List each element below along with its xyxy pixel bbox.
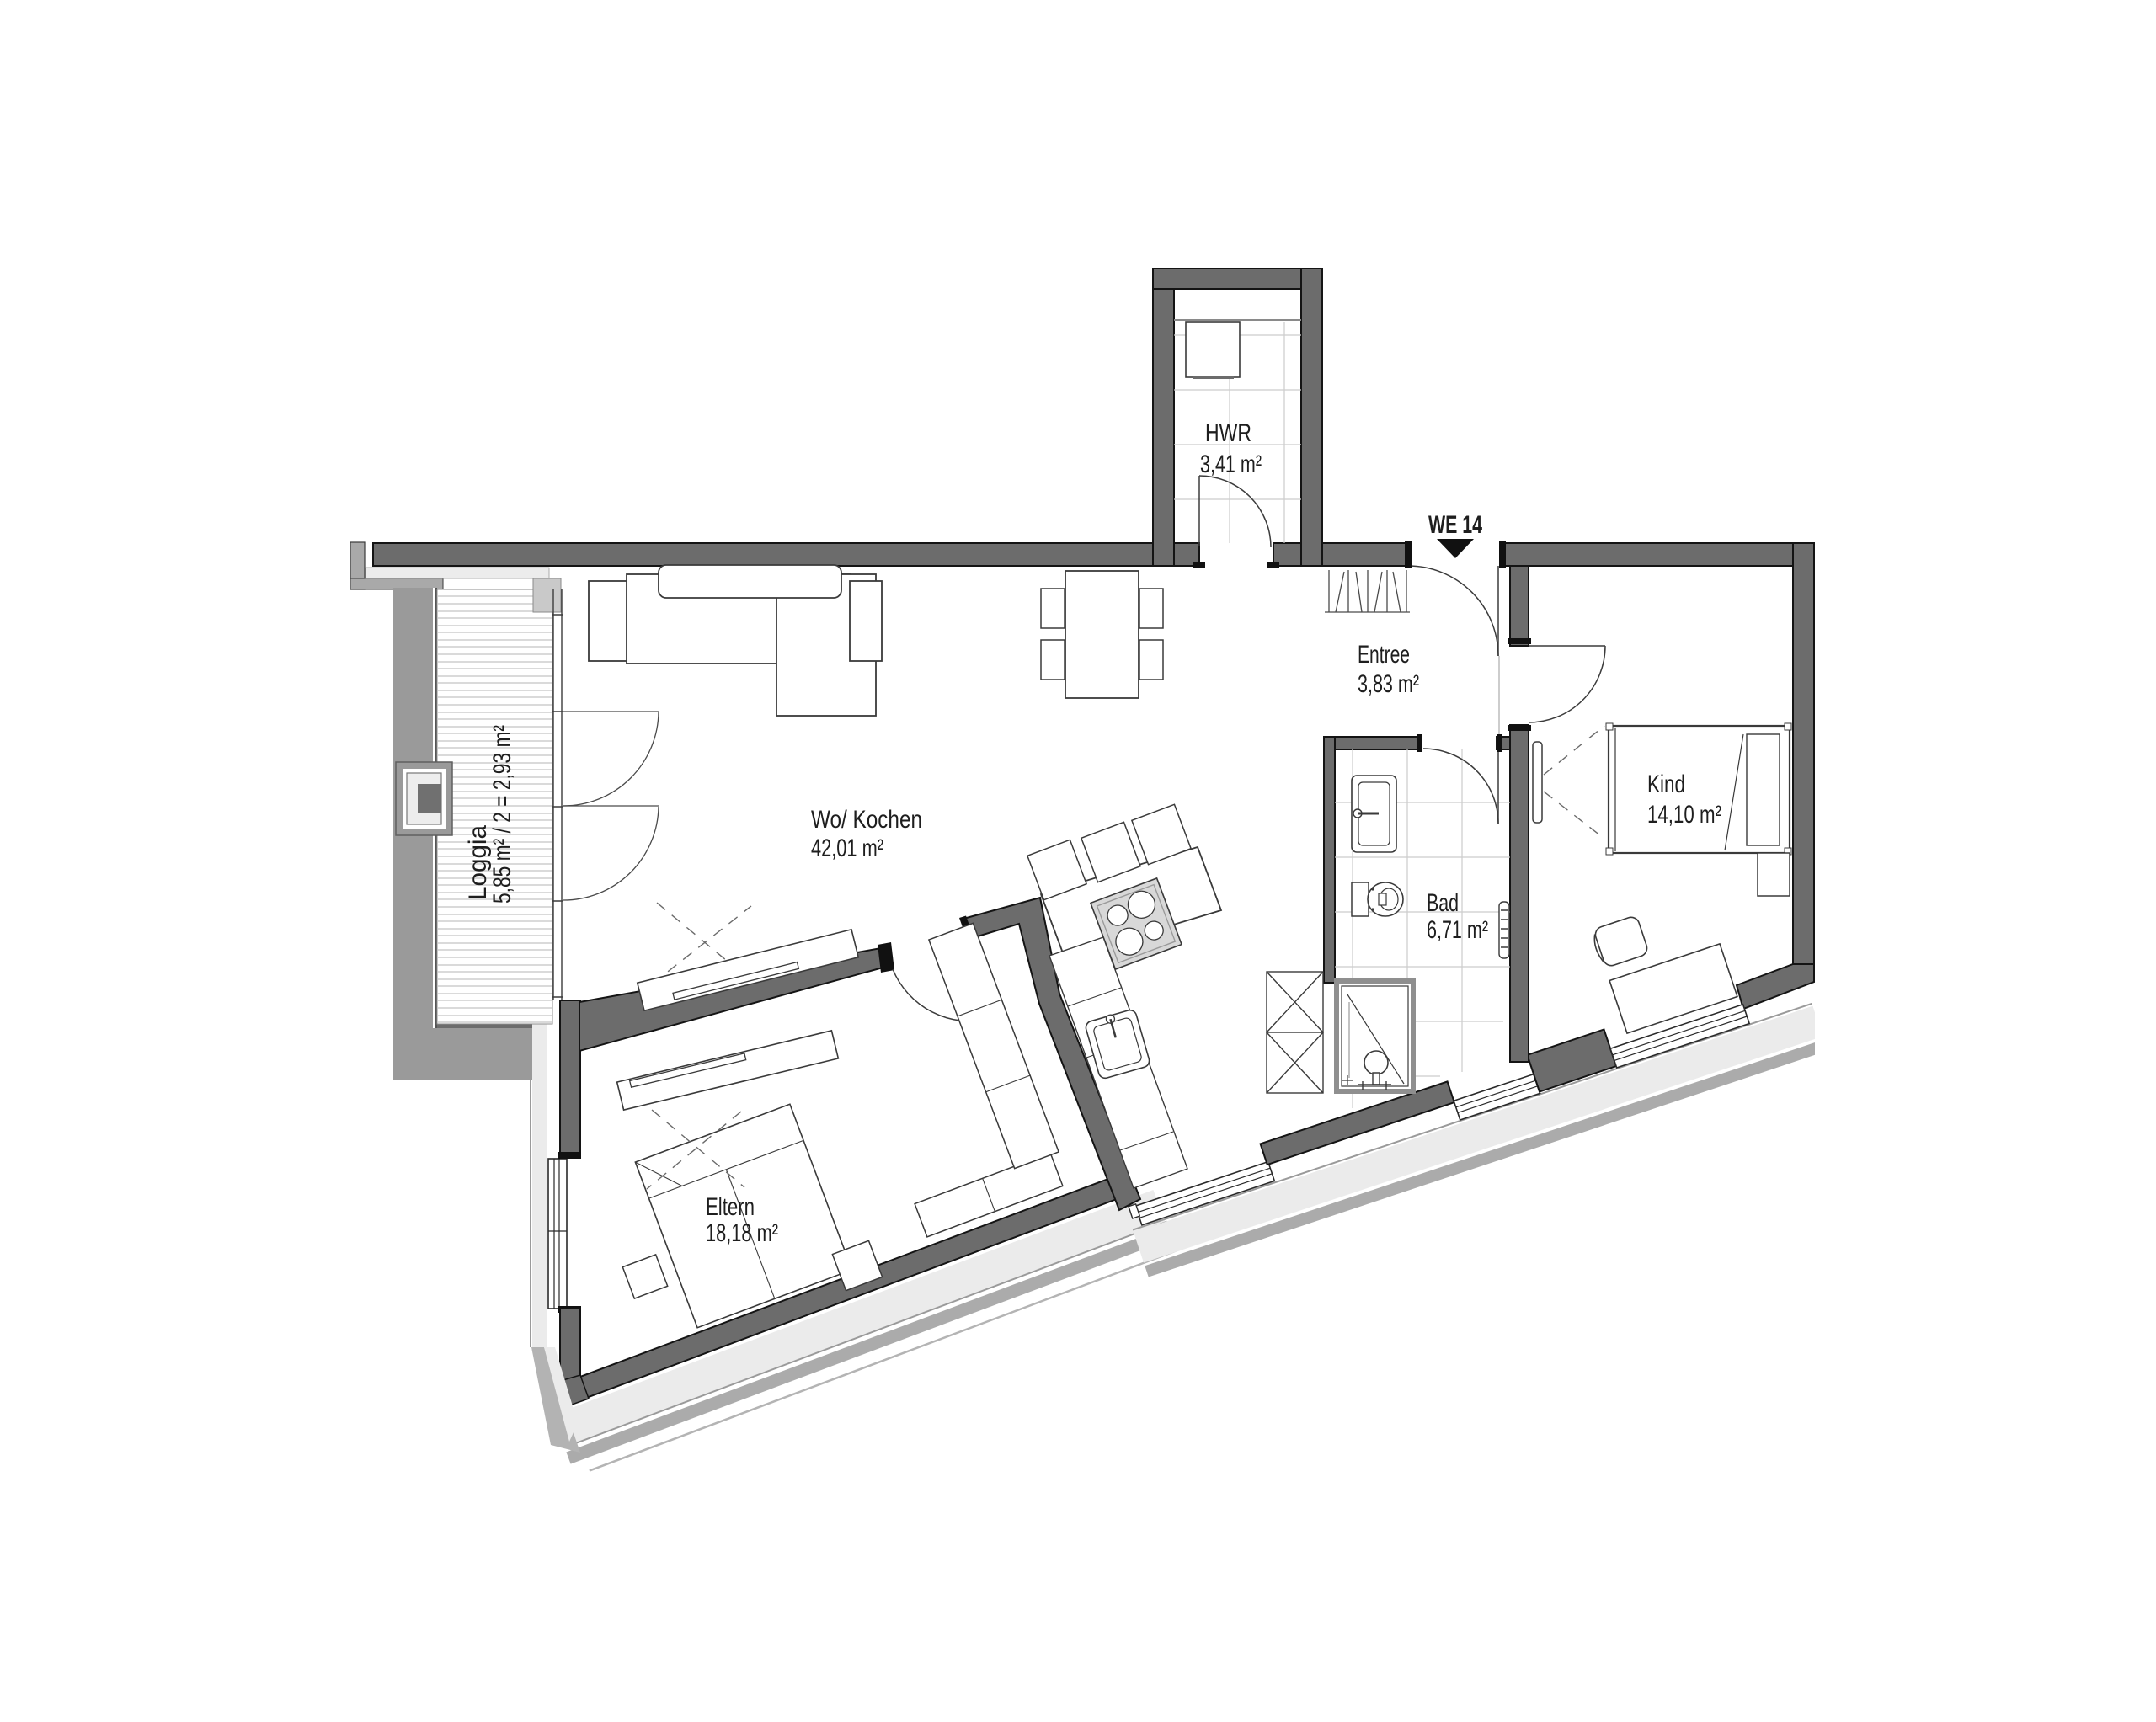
svg-text:Bad: Bad [1427,889,1459,917]
svg-text:18,18 m²: 18,18 m² [706,1219,778,1247]
svg-text:HWR: HWR [1205,419,1251,447]
svg-text:Eltern: Eltern [706,1193,755,1221]
svg-text:WE 14: WE 14 [1428,511,1482,539]
svg-text:6,71 m²: 6,71 m² [1427,916,1488,944]
svg-text:42,01 m²: 42,01 m² [811,834,883,862]
svg-text:Kind: Kind [1647,770,1685,798]
svg-text:Wo/ Kochen: Wo/ Kochen [811,806,922,834]
svg-text:5,85 m² / 2 = 2,93 m²: 5,85 m² / 2 = 2,93 m² [488,725,516,904]
svg-text:3,83 m²: 3,83 m² [1358,670,1419,698]
svg-text:Entree: Entree [1358,641,1410,669]
svg-text:14,10 m²: 14,10 m² [1647,801,1721,829]
svg-text:3,41 m²: 3,41 m² [1200,450,1262,478]
